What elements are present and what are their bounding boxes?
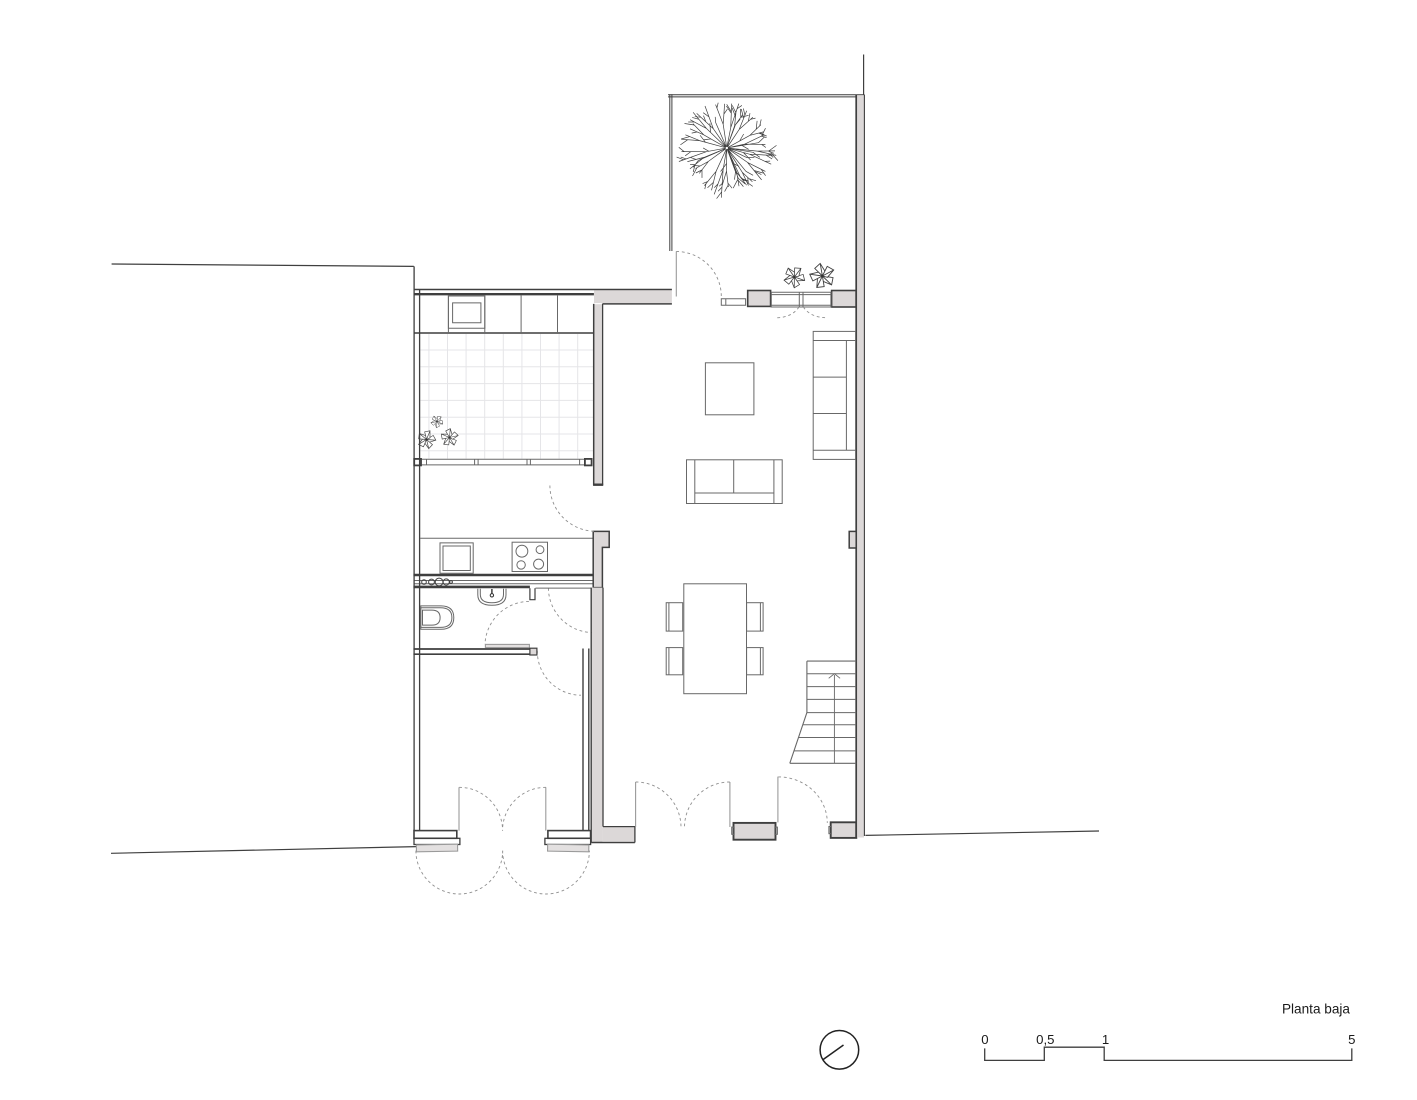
svg-text:0: 0 xyxy=(981,1032,988,1047)
svg-text:5: 5 xyxy=(1348,1032,1355,1047)
svg-text:0,5: 0,5 xyxy=(1036,1032,1054,1047)
svg-text:1: 1 xyxy=(1102,1032,1109,1047)
svg-text:Planta baja: Planta baja xyxy=(1282,1002,1350,1017)
